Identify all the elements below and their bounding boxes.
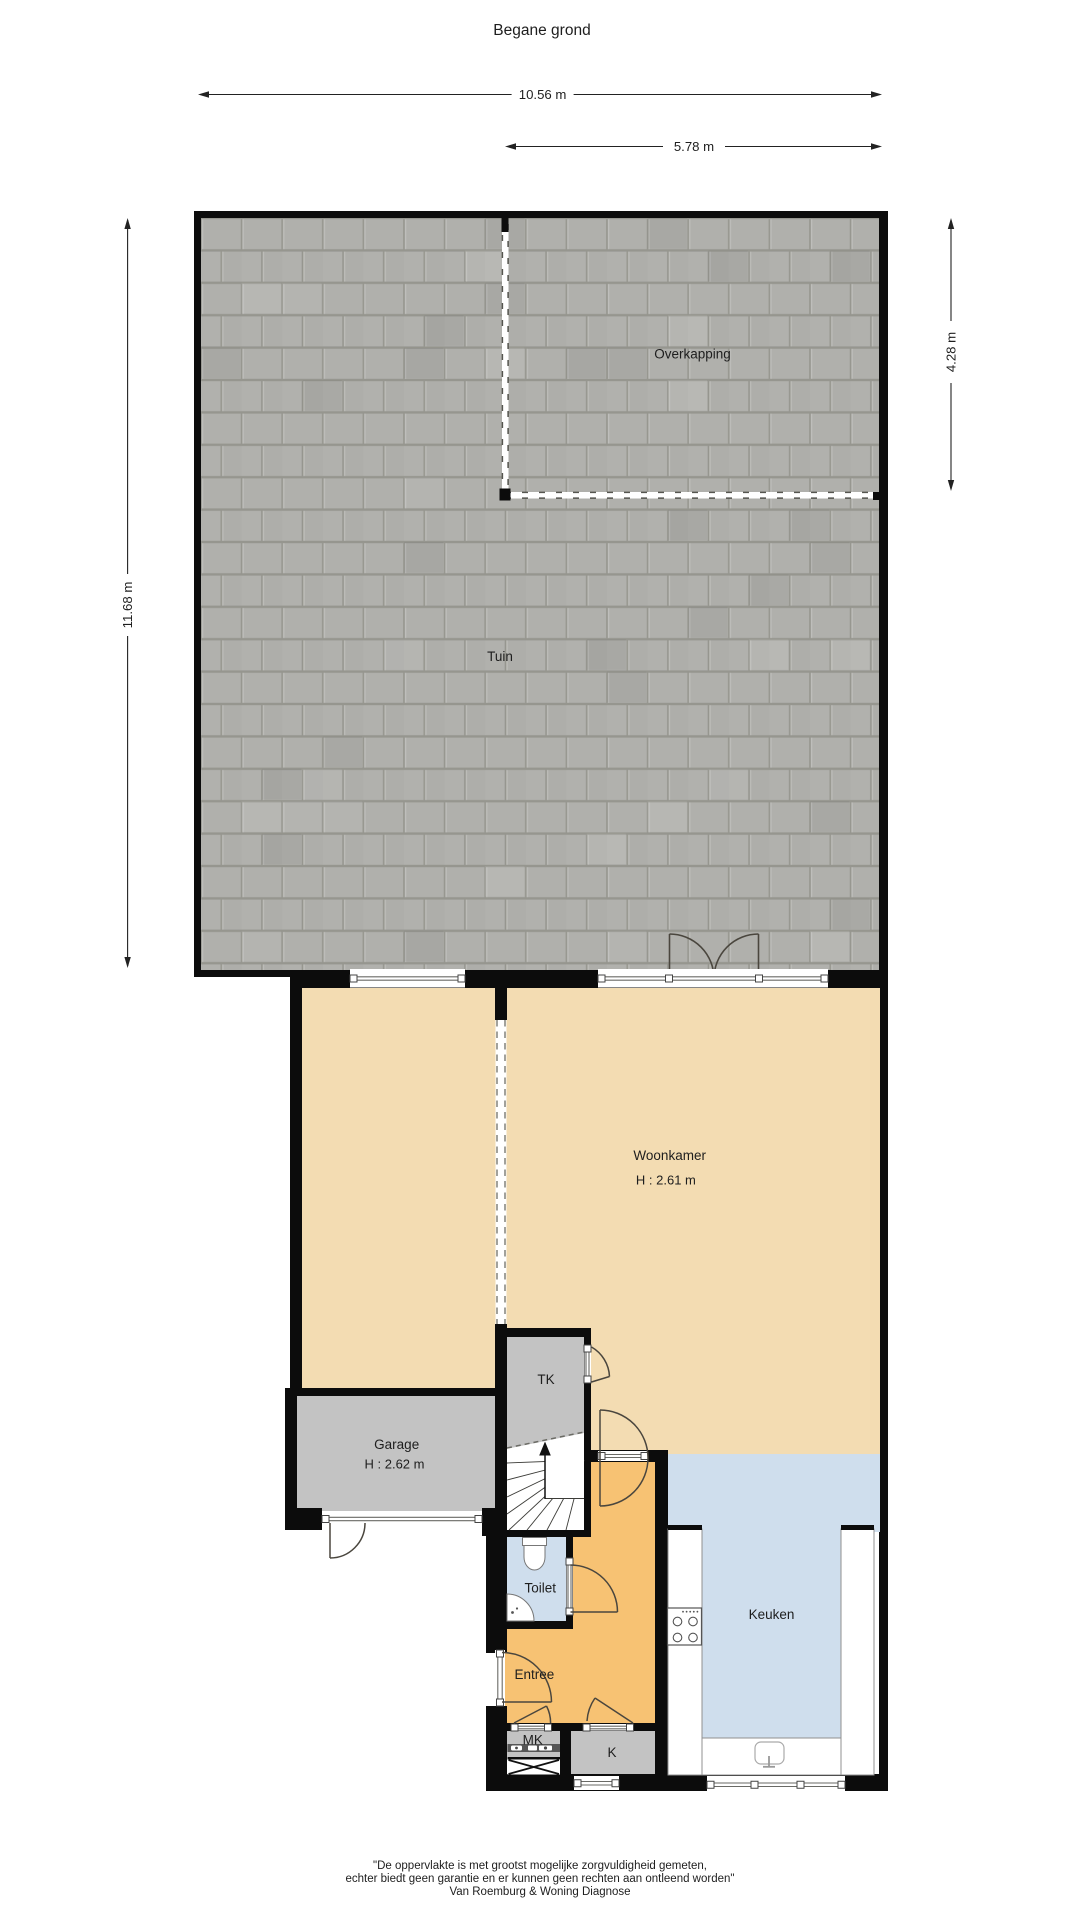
svg-text:4.28 m: 4.28 m [944, 332, 959, 372]
svg-text:Begane grond: Begane grond [493, 22, 590, 39]
svg-text:5.78 m: 5.78 m [674, 139, 714, 154]
svg-text:Garage: Garage [374, 1437, 419, 1452]
svg-text:Woonkamer: Woonkamer [633, 1148, 706, 1163]
svg-text:10.56 m: 10.56 m [519, 87, 567, 102]
svg-text:Tuin: Tuin [487, 649, 513, 664]
svg-text:Overkapping: Overkapping [654, 347, 731, 362]
svg-text:H : 2.61 m: H : 2.61 m [636, 1173, 696, 1188]
svg-text:Van Roemburg & Woning Diagnose: Van Roemburg & Woning Diagnose [449, 1886, 630, 1898]
svg-text:echter biedt geen garantie en: echter biedt geen garantie en er kunnen … [346, 1873, 735, 1885]
svg-text:TK: TK [537, 1372, 554, 1387]
svg-text:Toilet: Toilet [525, 1581, 557, 1596]
svg-text:K: K [607, 1745, 616, 1760]
svg-text:MK: MK [523, 1733, 543, 1748]
svg-text:Keuken: Keuken [749, 1607, 795, 1622]
svg-text:H : 2.62 m: H : 2.62 m [365, 1457, 425, 1472]
svg-text:Entree: Entree [515, 1667, 555, 1682]
svg-text:"De oppervlakte is met grootst: "De oppervlakte is met grootst mogelijke… [373, 1860, 707, 1872]
svg-text:11.68 m: 11.68 m [120, 582, 135, 629]
